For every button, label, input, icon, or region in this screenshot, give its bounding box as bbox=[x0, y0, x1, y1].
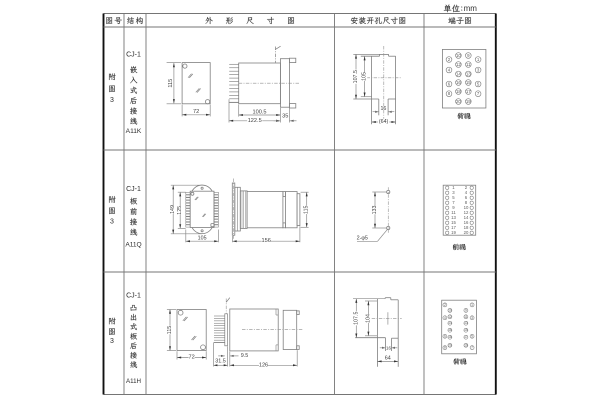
svg-text:18: 18 bbox=[456, 89, 461, 94]
svg-text:12: 12 bbox=[448, 315, 452, 319]
svg-text:18: 18 bbox=[448, 335, 452, 339]
svg-text:100.5: 100.5 bbox=[253, 109, 267, 115]
svg-text:125: 125 bbox=[177, 206, 183, 215]
svg-text:72: 72 bbox=[188, 355, 194, 361]
svg-text:122.5: 122.5 bbox=[248, 118, 262, 124]
svg-text:CJ-1: CJ-1 bbox=[126, 52, 141, 59]
svg-text:16: 16 bbox=[386, 345, 391, 350]
svg-text:CJ-1: CJ-1 bbox=[126, 186, 141, 193]
svg-text:31.5: 31.5 bbox=[215, 359, 226, 365]
svg-text:1: 1 bbox=[471, 303, 473, 307]
svg-text:105: 105 bbox=[198, 236, 207, 242]
svg-text:19: 19 bbox=[451, 230, 456, 235]
svg-text:72: 72 bbox=[193, 109, 199, 115]
svg-text:14: 14 bbox=[456, 72, 461, 77]
svg-text:115: 115 bbox=[168, 79, 174, 88]
svg-text:15: 15 bbox=[466, 80, 471, 85]
svg-text:14: 14 bbox=[448, 321, 452, 325]
svg-text:mm: mm bbox=[464, 4, 478, 13]
svg-text:CJ-1: CJ-1 bbox=[126, 292, 141, 299]
svg-text:107.5: 107.5 bbox=[353, 70, 359, 83]
svg-text:115: 115 bbox=[167, 326, 173, 334]
svg-text:A11K: A11K bbox=[126, 128, 142, 135]
svg-text:10: 10 bbox=[448, 308, 452, 312]
svg-text:19: 19 bbox=[466, 99, 471, 104]
svg-text:2-φ5: 2-φ5 bbox=[357, 235, 368, 241]
svg-text:104: 104 bbox=[365, 314, 371, 323]
svg-text:20: 20 bbox=[448, 343, 452, 347]
svg-text:20: 20 bbox=[456, 99, 461, 104]
svg-text:13: 13 bbox=[466, 72, 471, 77]
svg-text:107.5: 107.5 bbox=[353, 312, 359, 325]
svg-text:9: 9 bbox=[465, 308, 467, 312]
svg-text:A11H: A11H bbox=[126, 378, 141, 385]
svg-text:3: 3 bbox=[110, 97, 114, 104]
svg-text:15: 15 bbox=[464, 328, 468, 332]
svg-text:64: 64 bbox=[385, 355, 391, 361]
svg-text:6: 6 bbox=[444, 334, 446, 338]
svg-text:16: 16 bbox=[456, 80, 461, 85]
svg-text:2: 2 bbox=[444, 303, 446, 307]
svg-text:20: 20 bbox=[464, 230, 469, 235]
svg-text:16: 16 bbox=[380, 106, 386, 112]
svg-text:13: 13 bbox=[464, 321, 468, 325]
svg-text:3: 3 bbox=[110, 338, 114, 345]
svg-text:156: 156 bbox=[262, 238, 271, 244]
svg-text:17: 17 bbox=[466, 89, 471, 94]
svg-text:16: 16 bbox=[448, 328, 452, 332]
svg-text:105: 105 bbox=[362, 72, 368, 81]
svg-text:4: 4 bbox=[444, 316, 446, 320]
svg-text:12: 12 bbox=[456, 62, 461, 67]
svg-text:11: 11 bbox=[464, 315, 468, 319]
svg-text:9.5: 9.5 bbox=[241, 353, 249, 359]
svg-text:35: 35 bbox=[282, 113, 288, 119]
svg-text:10: 10 bbox=[456, 53, 461, 58]
svg-text:126: 126 bbox=[259, 362, 268, 368]
svg-text:133: 133 bbox=[372, 206, 378, 215]
svg-text:17: 17 bbox=[464, 335, 468, 339]
svg-text:115: 115 bbox=[304, 205, 310, 213]
svg-text:8: 8 bbox=[444, 346, 446, 350]
svg-text:3: 3 bbox=[471, 316, 473, 320]
svg-text:149: 149 bbox=[170, 205, 176, 214]
svg-text:5: 5 bbox=[471, 334, 473, 338]
svg-text:11: 11 bbox=[466, 62, 471, 67]
svg-text:7: 7 bbox=[471, 346, 473, 350]
svg-text:(64): (64) bbox=[379, 119, 389, 125]
svg-text:A11Q: A11Q bbox=[125, 242, 141, 249]
svg-text:19: 19 bbox=[464, 343, 468, 347]
svg-text:3: 3 bbox=[110, 219, 114, 226]
